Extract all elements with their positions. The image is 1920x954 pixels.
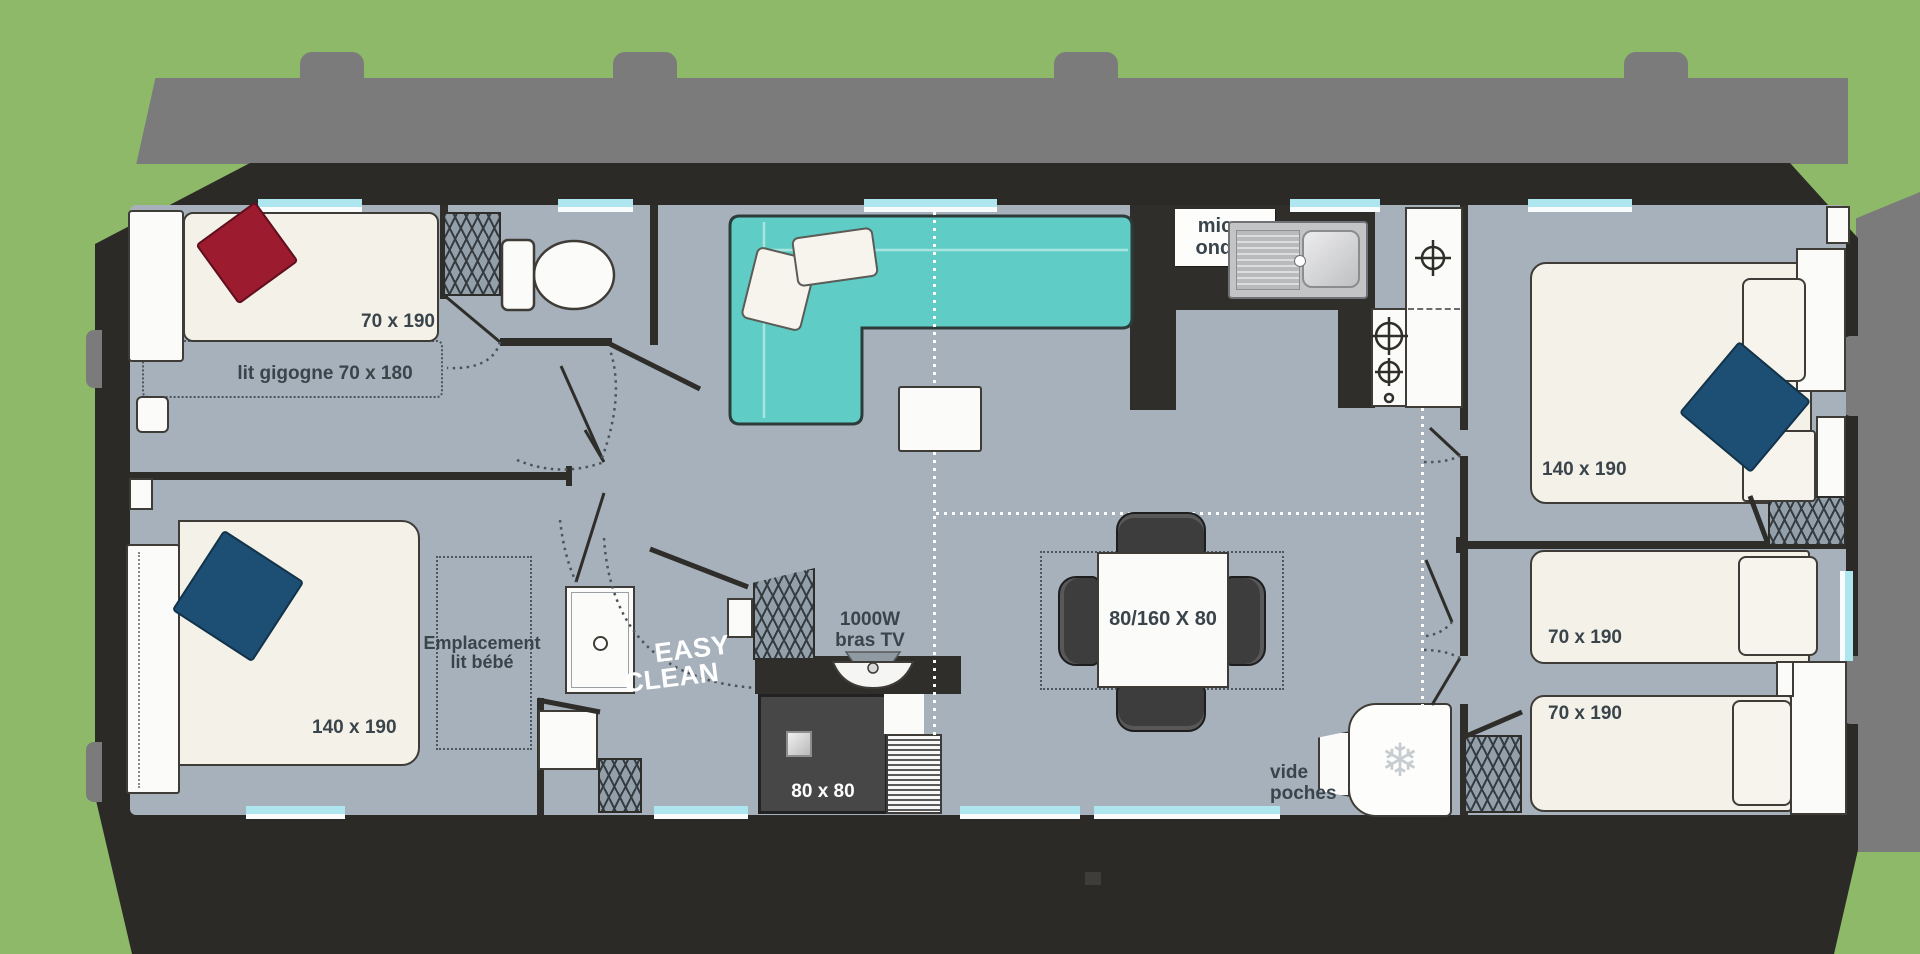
pillow-white-bottom-right [1732, 700, 1792, 806]
bed-top-right-label: 140 x 190 [1542, 460, 1642, 481]
window-bottom-4 [1094, 806, 1280, 819]
bed-top-left-text: 70 x 190 [361, 311, 435, 332]
tv-label-1: 1000W [820, 610, 920, 631]
window-top-3 [864, 199, 997, 212]
deck-tab-1 [300, 52, 364, 86]
dining-table-label: 80/160 X 80 [1109, 609, 1217, 631]
deck-bump-left-1 [86, 330, 102, 388]
deck-right [1856, 192, 1920, 852]
shower-label: 80 x 80 [770, 782, 876, 803]
shower-text: 80 x 80 [791, 781, 854, 802]
deck-tab-4 [1624, 52, 1688, 86]
headboard-stitch-line [138, 552, 142, 788]
bed-bottom-left-text: 140 x 190 [312, 717, 397, 738]
baby-bed-text-1: Emplacement [402, 634, 562, 653]
pillow-white-mid-right [1738, 556, 1818, 656]
shower-drain [786, 731, 812, 757]
coffee-table [898, 386, 982, 452]
sink-basin [1302, 230, 1360, 288]
window-top-2 [558, 199, 633, 212]
side-column-2 [1816, 416, 1846, 502]
dining-table: 80/160 X 80 [1097, 552, 1229, 688]
chair-right [1224, 576, 1266, 666]
bed-top-left-label: 70 x 190 [340, 312, 435, 333]
kitchen-pillar [1130, 205, 1176, 410]
baby-bed-label: Emplacement lit bébé [402, 634, 562, 673]
window-top-4 [1290, 199, 1380, 212]
fridge-unit: ❄ [1348, 703, 1452, 817]
divider-dining-hall [1421, 408, 1424, 706]
shelf-bedroom2 [129, 478, 153, 510]
cabinet-bedroom2-corner [538, 710, 598, 770]
wardrobe-wc [443, 212, 501, 296]
bath-door-jamb [884, 694, 924, 734]
deck-top [112, 78, 1848, 164]
trundle-bed-label: lit gigogne 70 x 180 [205, 364, 445, 385]
deck-tab-3 [1054, 52, 1118, 86]
bed-bottom-right-label: 70 x 190 [1548, 704, 1638, 725]
window-top-1 [258, 199, 362, 212]
wall-wc-bottom [500, 338, 612, 346]
bed-mid-right-label: 70 x 190 [1548, 628, 1638, 649]
divider-living-dining [933, 212, 936, 740]
trundle-bed-text: lit gigogne 70 x 180 [237, 363, 412, 384]
wardrobe-bedroom2-corner [598, 758, 642, 813]
window-right [1840, 571, 1853, 661]
window-bottom-3 [960, 806, 1080, 819]
gas-hob [1371, 308, 1407, 407]
headboard-bed-bottom-left [126, 544, 180, 794]
headboard-bed-top-left [128, 210, 184, 362]
corner-shelf-top-right [1826, 206, 1850, 244]
tv-label: 1000W bras TV [820, 610, 920, 651]
vide-poches-text-1: vide [1270, 763, 1360, 784]
kitchen-sink [1228, 221, 1368, 299]
chair-left [1058, 576, 1100, 666]
window-top-5 [1528, 199, 1632, 212]
sink-tap [1294, 255, 1306, 267]
wall-left-bedrooms-tick [566, 466, 572, 486]
floor-plan-canvas: 70 x 190 lit gigogne 70 x 180 140 x 190 … [0, 0, 1920, 954]
deck-bump-left-2 [86, 742, 102, 802]
tall-unit-divider [1408, 308, 1460, 310]
nightstand-top-left [136, 396, 169, 433]
wardrobe-top-right [1768, 496, 1846, 546]
kitchen-counter-side [1338, 306, 1375, 408]
tv-label-2: bras TV [820, 631, 920, 652]
shelf-between-beds [1776, 661, 1794, 697]
towel-radiator [886, 734, 942, 814]
terrace-mark [1085, 872, 1101, 885]
wall-left-bedrooms [130, 472, 572, 480]
wardrobe-bottom-right [1464, 735, 1522, 813]
wardrobe-bathroom [753, 568, 815, 660]
vide-poches-text-2: poches [1270, 784, 1360, 805]
bed-mid-right-text: 70 x 190 [1548, 627, 1622, 648]
vide-poches-label: vide poches [1270, 763, 1360, 804]
chair-bottom [1116, 684, 1206, 732]
sink-drainer [1236, 230, 1300, 290]
wall-right-section-mid [1460, 456, 1468, 656]
snowflake-icon: ❄ [1381, 733, 1420, 787]
window-bottom-2 [654, 806, 748, 819]
window-bottom-1 [246, 806, 345, 819]
wall-wc-right [650, 205, 658, 345]
bath-vanity-counter [755, 656, 961, 694]
bed-bottom-right-text: 70 x 190 [1548, 703, 1622, 724]
vanity-knob [593, 636, 608, 651]
bed-bottom-left-label: 140 x 190 [312, 718, 407, 739]
bed-top-right-text: 140 x 190 [1542, 459, 1627, 480]
deck-tab-2 [613, 52, 677, 86]
baby-bed-text-2: lit bébé [402, 653, 562, 672]
wall-right-divider-tick [1456, 537, 1462, 553]
wardrobe-column-bottom-right [1790, 661, 1847, 815]
